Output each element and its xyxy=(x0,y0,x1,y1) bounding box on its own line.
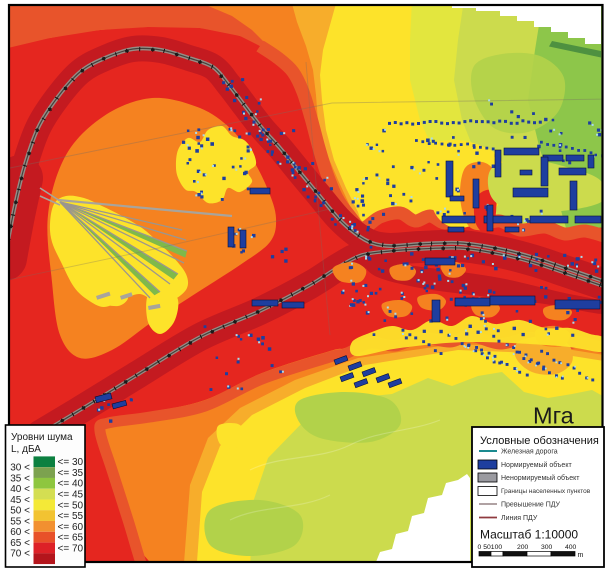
svg-text:<= 35: <= 35 xyxy=(58,468,84,479)
svg-text:Линия ПДУ: Линия ПДУ xyxy=(501,515,538,522)
svg-text:55 <: 55 < xyxy=(10,516,30,527)
svg-text:m: m xyxy=(578,552,584,559)
svg-text:30 <: 30 < xyxy=(10,463,30,474)
svg-text:<= 55: <= 55 xyxy=(58,511,84,522)
svg-text:L, дБА: L, дБА xyxy=(11,444,41,455)
svg-text:<= 65: <= 65 xyxy=(58,533,84,544)
svg-text:45 <: 45 < xyxy=(10,495,30,506)
svg-text:<= 45: <= 45 xyxy=(58,490,84,501)
svg-text:<= 30: <= 30 xyxy=(58,457,84,468)
svg-text:Уровни шума: Уровни шума xyxy=(11,432,73,443)
svg-text:100: 100 xyxy=(491,544,503,551)
svg-text:<= 70: <= 70 xyxy=(58,543,84,554)
svg-text:50 <: 50 < xyxy=(10,506,30,517)
svg-text:Границы населенных пунктов: Границы населенных пунктов xyxy=(501,488,591,495)
svg-text:65 <: 65 < xyxy=(10,538,30,549)
svg-text:<= 40: <= 40 xyxy=(58,479,84,490)
svg-text:Условные обозначения: Условные обозначения xyxy=(480,435,599,447)
svg-text:35 <: 35 < xyxy=(10,473,30,484)
svg-text:400: 400 xyxy=(565,544,577,551)
svg-text:200: 200 xyxy=(517,544,529,551)
svg-text:Превышение ПДУ: Превышение ПДУ xyxy=(501,502,561,509)
svg-text:Нормируемый объект: Нормируемый объект xyxy=(501,461,572,469)
svg-text:Ненормируемый объект: Ненормируемый объект xyxy=(501,474,580,482)
svg-text:Мга: Мга xyxy=(533,403,575,429)
svg-text:60 <: 60 < xyxy=(10,527,30,538)
svg-text:<= 50: <= 50 xyxy=(58,500,84,511)
svg-text:70 <: 70 < xyxy=(10,549,30,560)
svg-text:0: 0 xyxy=(478,544,482,551)
svg-text:40 <: 40 < xyxy=(10,484,30,495)
svg-text:<= 60: <= 60 xyxy=(58,522,84,533)
svg-text:Масштаб 1:10000: Масштаб 1:10000 xyxy=(480,528,578,542)
svg-text:300: 300 xyxy=(541,544,553,551)
svg-text:Железная дорога: Железная дорога xyxy=(501,449,558,456)
